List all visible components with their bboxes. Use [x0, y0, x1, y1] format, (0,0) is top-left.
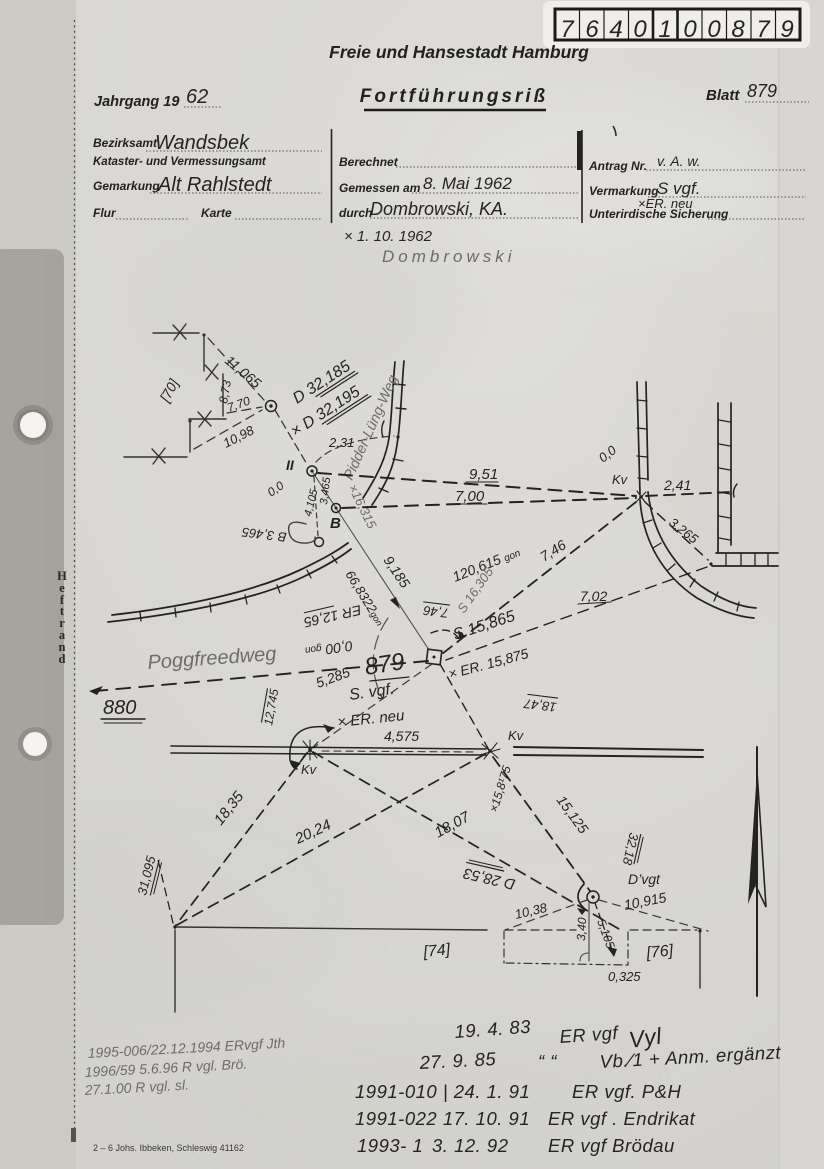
svg-text:7,02: 7,02 [580, 588, 607, 604]
svg-text:d: d [59, 652, 66, 666]
svg-text:4: 4 [609, 16, 622, 43]
svg-text:1991-010 | 24. 1. 91: 1991-010 | 24. 1. 91 [355, 1081, 530, 1102]
svg-text:ER vgf: ER vgf [559, 1022, 620, 1047]
svg-text:[74]: [74] [422, 941, 452, 961]
svg-text:× 1. 10. 1962: × 1. 10. 1962 [344, 228, 433, 245]
svg-text:0: 0 [707, 16, 721, 43]
svg-text:3. 12. 92: 3. 12. 92 [432, 1135, 509, 1156]
svg-text:Jahrgang 19: Jahrgang 19 [94, 94, 179, 110]
svg-text:3,40: 3,40 [574, 917, 589, 941]
svg-text:Kv: Kv [612, 472, 629, 487]
svg-text:[76]: [76] [645, 942, 675, 962]
svg-text:ER vgf. P&H: ER vgf. P&H [572, 1081, 681, 1102]
svg-text:7,00: 7,00 [455, 488, 485, 505]
svg-text:9: 9 [780, 16, 793, 43]
svg-text:Gemarkung: Gemarkung [93, 179, 160, 193]
svg-text:Flur: Flur [93, 206, 117, 220]
svg-text:B: B [330, 515, 341, 532]
svg-text:durch: durch [339, 206, 372, 220]
svg-text:Antrag Nr.: Antrag Nr. [588, 159, 647, 173]
svg-text:Dombrowski, KA.: Dombrowski, KA. [370, 199, 508, 219]
svg-text:7: 7 [560, 16, 575, 43]
svg-text:v. A. w.: v. A. w. [657, 153, 701, 169]
svg-text:ER vgf Brödau: ER vgf Brödau [548, 1135, 675, 1156]
svg-text:D’vgt: D’vgt [628, 871, 661, 887]
svg-text:Bezirksamt: Bezirksamt [93, 136, 158, 150]
svg-text:Blatt: Blatt [706, 87, 740, 104]
svg-text:879: 879 [747, 81, 777, 101]
svg-text:Freie und Hansestadt Hamburg: Freie und Hansestadt Hamburg [329, 42, 589, 62]
svg-text:8: 8 [731, 16, 745, 43]
svg-text:0,325: 0,325 [608, 969, 641, 984]
svg-text:6: 6 [585, 16, 599, 43]
svg-text:II: II [286, 457, 295, 473]
svg-text:7,46: 7,46 [422, 603, 450, 621]
svg-text:1: 1 [658, 16, 671, 43]
svg-text:1991-022 17. 10. 91: 1991-022 17. 10. 91 [355, 1108, 530, 1129]
svg-text:Karte: Karte [201, 206, 232, 220]
svg-text:Dombrowski: Dombrowski [382, 247, 516, 266]
svg-text:ER vgf . Endrikat: ER vgf . Endrikat [548, 1108, 696, 1129]
svg-text:1993- 1: 1993- 1 [357, 1135, 423, 1156]
svg-text:0: 0 [683, 16, 697, 43]
svg-text:880: 880 [103, 697, 136, 719]
svg-text:2,41: 2,41 [663, 477, 691, 493]
svg-text:7: 7 [756, 16, 771, 43]
svg-text:8. Mai 1962: 8. Mai 1962 [423, 174, 512, 193]
svg-text:0: 0 [633, 16, 647, 43]
svg-text:“ “: “ “ [538, 1051, 557, 1072]
svg-text:4,575: 4,575 [384, 728, 419, 744]
svg-text:2 – 6 Johs. Ibbeken, Schl: 2 – 6 Johs. Ibbeken, Schleswig 41162 [93, 1143, 244, 1153]
svg-text:Gemessen am: Gemessen am [339, 181, 421, 195]
svg-text:Kv: Kv [301, 762, 318, 777]
svg-text:Kv: Kv [508, 728, 525, 743]
svg-text:27. 9. 85: 27. 9. 85 [418, 1048, 497, 1073]
svg-text:Kataster- und Vermessungsamt: Kataster- und Vermessungsamt [93, 156, 267, 168]
svg-text:9,51: 9,51 [469, 466, 498, 483]
svg-text:Fortführungsriß: Fortführungsriß [360, 86, 549, 107]
svg-text:62: 62 [186, 86, 208, 108]
svg-text:Berechnet: Berechnet [339, 155, 399, 169]
